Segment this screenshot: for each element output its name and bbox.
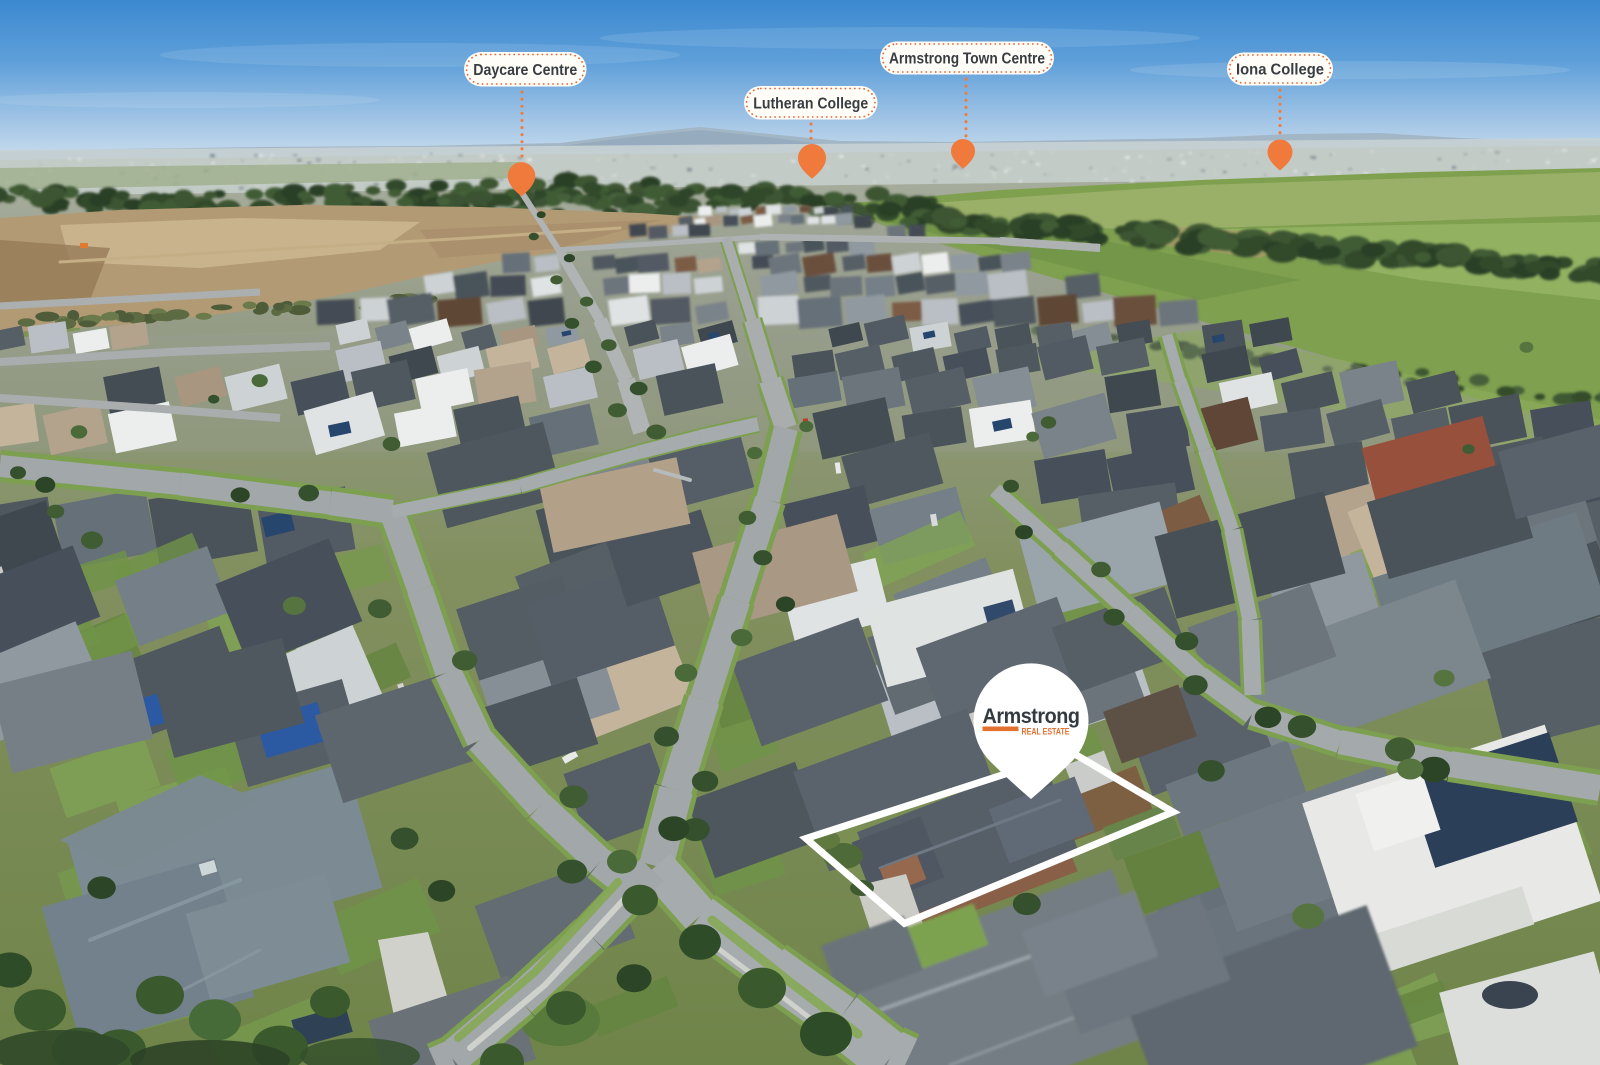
svg-text:Armstrong Town Centre: Armstrong Town Centre [889, 51, 1045, 68]
svg-text:Daycare Centre: Daycare Centre [473, 62, 577, 79]
svg-text:Lutheran College: Lutheran College [753, 95, 868, 112]
svg-text:Armstrong: Armstrong [983, 704, 1080, 728]
svg-text:Iona College: Iona College [1236, 62, 1324, 79]
svg-text:REAL ESTATE: REAL ESTATE [1022, 727, 1070, 737]
